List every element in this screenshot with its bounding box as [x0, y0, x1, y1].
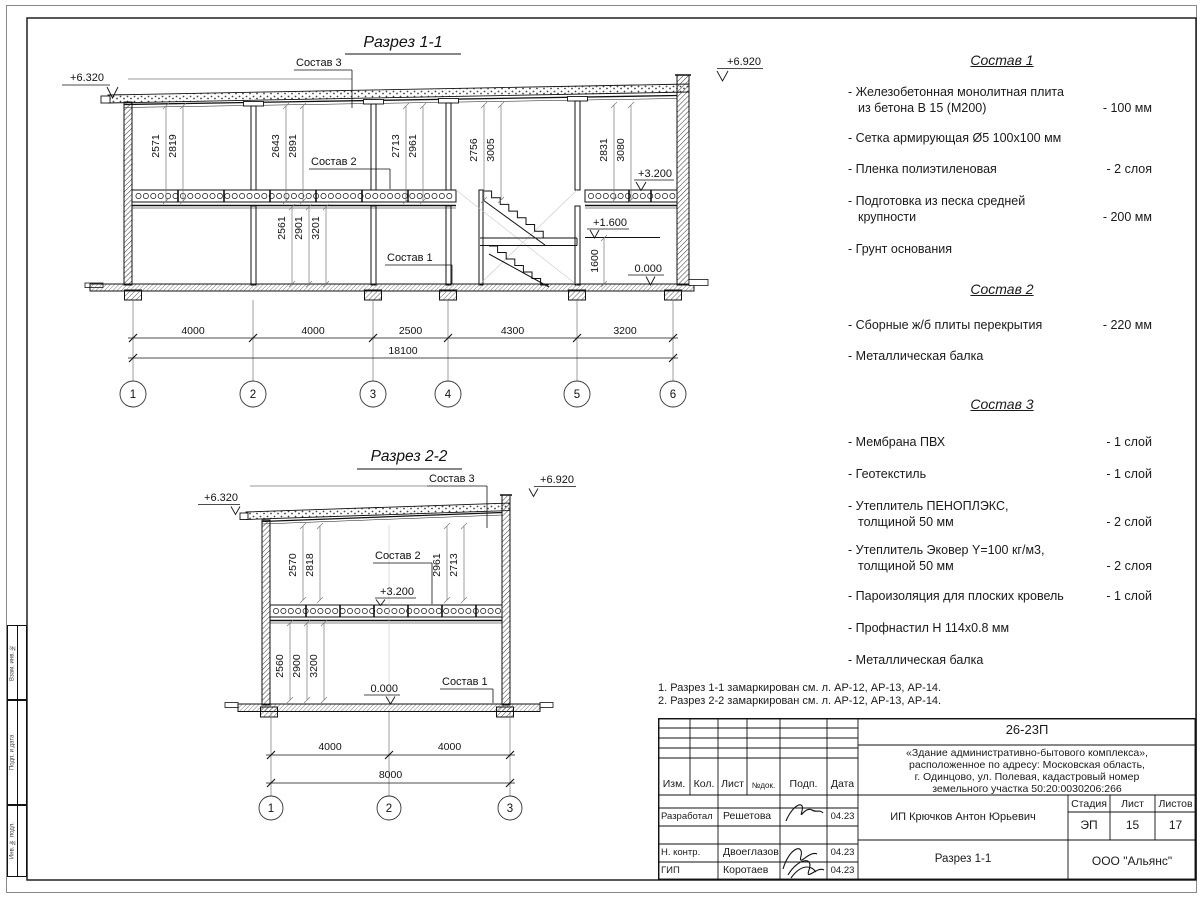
composition-title: Состав 3: [848, 396, 1156, 412]
axis-number: 1: [268, 803, 274, 815]
axis-number: 4: [445, 389, 452, 401]
dim-label: 2643: [270, 134, 282, 158]
person-name: Двоеглазов: [723, 846, 779, 858]
person-name: Решетова: [723, 810, 771, 822]
composition-1: Состав 1 - Железобетонная монолитная пли…: [848, 52, 1156, 257]
dim-label: 1600: [589, 249, 601, 273]
list-item: - Мембрана ПВХ- 1 слой: [848, 434, 1156, 450]
sheet-title: Разрез 1-1: [858, 853, 1068, 865]
composition-3: Состав 3 - Мембрана ПВХ- 1 слой - Геотек…: [848, 396, 1156, 668]
customer-name: ИП Крючков Антон Юрьевич: [858, 811, 1068, 823]
dim-label: 2901: [293, 216, 305, 240]
note-line: 2. Разрез 2-2 замаркирован см. л. АР-12,…: [658, 695, 941, 708]
dim-total-label: 8000: [379, 769, 403, 781]
section-2-2-drawing: Разрез 2-2 Состав 3 Состав 2 Состав 1 +6…: [185, 444, 580, 834]
axis-number: 3: [507, 803, 513, 815]
composition-title: Состав 1: [848, 52, 1156, 68]
date-value: 04.23: [827, 811, 858, 822]
dim-label: 2818: [304, 553, 316, 577]
col-header: Кол.: [690, 778, 718, 790]
sostav1-label: Состав 1: [442, 676, 488, 688]
dim-label: 4000: [181, 325, 205, 337]
elevation-label: +3.200: [380, 586, 414, 598]
elevation-label: +1.600: [593, 217, 627, 229]
col-header: Лист: [1110, 798, 1155, 810]
dim-label: 2560: [274, 654, 286, 678]
dim-label: 2819: [167, 134, 179, 158]
dim-label: 2571: [150, 134, 162, 158]
date-value: 04.23: [827, 865, 858, 876]
col-header: Листов: [1155, 798, 1196, 810]
dim-label: 3200: [308, 654, 320, 678]
sidebar-cell: Инв. № подл.: [7, 805, 27, 877]
list-item: - Сетка армирующая Ø5 100х100 мм: [848, 130, 1156, 146]
dim-label: 3200: [613, 325, 637, 337]
axis-number: 2: [386, 803, 392, 815]
sheets-total: 17: [1155, 818, 1196, 832]
list-item: - Металлическая балка: [848, 348, 1156, 364]
dim-label: 2831: [598, 138, 610, 162]
dim-label: 4000: [318, 741, 342, 753]
composition-title: Состав 2: [848, 281, 1156, 297]
sidebar-label: Инв. № подл.: [8, 806, 17, 876]
list-item: - Грунт основания: [848, 241, 1156, 257]
role-label: ГИП: [661, 865, 680, 876]
section-title: Разрез 2-2: [371, 448, 448, 465]
dim-label: 3080: [615, 138, 627, 162]
dim-label: 4000: [301, 325, 325, 337]
note-line: 1. Разрез 1-1 замаркирован см. л. АР-12,…: [658, 682, 941, 695]
col-header: Изм.: [658, 778, 690, 790]
col-header: №док.: [747, 781, 780, 790]
col-header: Подп.: [780, 778, 827, 790]
dim-label: 2756: [468, 138, 480, 162]
dim-label: 4000: [438, 741, 462, 753]
sidebar-cell: Взам. инв. №: [7, 625, 27, 700]
dim-lines: [250, 486, 510, 796]
dim-label: 2961: [431, 553, 443, 577]
role-label: Н. контр.: [661, 847, 700, 858]
dim-label: 3201: [310, 216, 322, 240]
elevation-label: +6.920: [540, 474, 574, 486]
sidebar-label: Взам. инв. №: [8, 626, 17, 699]
list-item: - Железобетонная монолитная плитаиз бето…: [848, 84, 1156, 116]
stage-value: ЭП: [1068, 818, 1110, 832]
list-item: - Сборные ж/б плиты перекрытия- 220 мм: [848, 317, 1156, 333]
project-desc-line: расположенное по адресу: Московская обла…: [858, 759, 1196, 771]
axis-number: 6: [670, 389, 676, 401]
person-name: Коротаев: [723, 864, 768, 876]
date-value: 04.23: [827, 847, 858, 858]
dim-label: 2891: [287, 134, 299, 158]
sidebar-cell: Подп. и дата: [7, 700, 27, 805]
dim-label: 2900: [291, 654, 303, 678]
axis-number: 5: [574, 389, 580, 401]
dim-label: 2961: [407, 134, 419, 158]
project-desc-line: «Здание административно-бытового комплек…: [858, 747, 1196, 759]
divider: [17, 701, 18, 804]
sostav2-label: Состав 2: [311, 156, 357, 168]
drawing-sheet: Взам. инв. № Подп. и дата Инв. № подл.: [0, 0, 1200, 900]
list-item: - Подготовка из песка среднейкрупности- …: [848, 193, 1156, 225]
col-header: Стадия: [1068, 798, 1110, 810]
elevation-label: 0.000: [634, 263, 662, 275]
col-header: Лист: [718, 778, 747, 790]
project-desc-line: земельного участка 50:20:0030206:266: [858, 783, 1196, 795]
sostav3-label: Состав 3: [429, 473, 475, 485]
project-desc-line: г. Одинцово, ул. Полевая, кадастровый но…: [858, 771, 1196, 783]
title-block: 26-23П «Здание административно-бытового …: [658, 718, 1196, 880]
axis-number: 3: [370, 389, 376, 401]
axis-bubbles: [120, 381, 686, 407]
dim-total-label: 18100: [388, 345, 417, 357]
axis-number: 1: [130, 389, 136, 401]
dim-label: 4300: [501, 325, 525, 337]
col-header: Дата: [827, 778, 858, 790]
elevation-label: +6.320: [204, 492, 238, 504]
notes: 1. Разрез 1-1 замаркирован см. л. АР-12,…: [658, 682, 941, 708]
divider: [17, 806, 18, 876]
sostav3-label: Состав 3: [296, 57, 342, 69]
sheet-number: 15: [1110, 818, 1155, 832]
dim-label: 2713: [390, 134, 402, 158]
elevation-label: +6.920: [727, 56, 761, 68]
list-item: - Геотекстиль- 1 слой: [848, 466, 1156, 482]
dim-label: 2561: [276, 216, 288, 240]
role-label: Разработал: [661, 811, 713, 822]
project-code: 26-23П: [858, 722, 1196, 737]
divider: [17, 626, 18, 699]
elevation-label: 0.000: [370, 683, 398, 695]
list-item: - Пароизоляция для плоских кровель- 1 сл…: [848, 588, 1156, 604]
composition-2: Состав 2 - Сборные ж/б плиты перекрытия-…: [848, 281, 1156, 364]
sidebar-label: Подп. и дата: [8, 701, 17, 804]
sostav1-label: Состав 1: [387, 252, 433, 264]
dim-label: 2570: [287, 553, 299, 577]
dim-label: 2713: [448, 553, 460, 577]
elevation-label: +3.200: [638, 168, 672, 180]
list-item: - Утеплитель Эковер Y=100 кг/м3,толщиной…: [848, 542, 1156, 574]
dim-label: 3005: [485, 138, 497, 162]
section-title: Разрез 1-1: [363, 34, 442, 51]
dim-label: 2500: [399, 325, 423, 337]
section-1-1-drawing: Разрез 1-1 Состав 3 Состав 2 Состав 1 +6…: [40, 28, 780, 420]
axis-number: 2: [250, 389, 256, 401]
list-item: - Утеплитель ПЕНОПЛЭКС,толщиной 50 мм- 2…: [848, 498, 1156, 530]
elevation-label: +6.320: [70, 72, 104, 84]
company-name: ООО "Альянс": [1068, 854, 1196, 868]
building-structure: [85, 75, 708, 300]
list-item: - Пленка полиэтиленовая- 2 слоя: [848, 161, 1156, 177]
list-item: - Металлическая балка: [848, 652, 1156, 668]
sostav2-label: Состав 2: [375, 550, 421, 562]
list-item: - Профнастил Н 114х0.8 мм: [848, 620, 1156, 636]
